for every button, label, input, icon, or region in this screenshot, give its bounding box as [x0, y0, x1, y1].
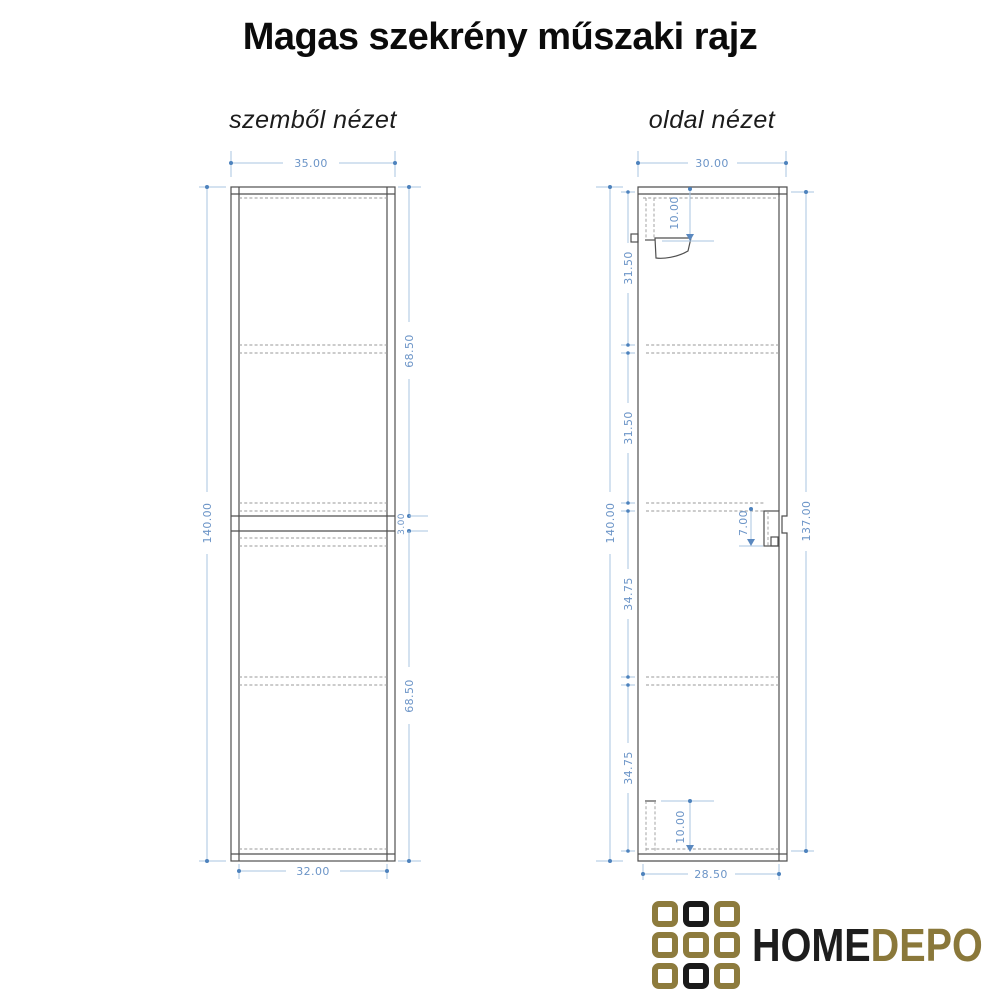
dim-side-bottom-detail: 10.00	[674, 810, 687, 844]
logo-square	[714, 932, 740, 958]
dim-front-bottom-width: 32.00	[296, 865, 330, 878]
front-dim-height: 140.00	[199, 185, 226, 863]
homedepo-logo: HOMEDEPO	[652, 901, 1000, 989]
side-dim-height: 140.00	[596, 185, 623, 863]
logo-square	[683, 963, 709, 989]
dim-front-gap: 3.00	[397, 513, 407, 535]
front-dim-bottom-width: 32.00	[237, 864, 389, 879]
dim-side-interior-height: 137.00	[800, 501, 813, 542]
dim-side-mid-detail: 7.00	[737, 510, 750, 536]
logo-square	[683, 932, 709, 958]
dim-front-upper-section: 68.50	[403, 334, 416, 368]
front-dim-lower-section: 68.50	[398, 531, 421, 863]
side-dim-bottom-width: 28.50	[641, 864, 781, 881]
dim-side-bottom-width: 28.50	[694, 868, 728, 881]
side-mid-bracket	[764, 511, 779, 546]
side-view-drawing: 30.00 140.00	[596, 151, 814, 881]
dim-side-section-3: 34.75	[622, 577, 635, 611]
dim-side-top-width: 30.00	[695, 157, 729, 170]
side-dim-sections: 31.50 31.50 34.75 34.75	[621, 190, 635, 853]
front-dim-gap: 3.00	[397, 513, 428, 535]
dim-side-top-detail: 10.00	[668, 196, 681, 230]
logo-square	[714, 901, 740, 927]
dim-front-lower-section: 68.50	[403, 679, 416, 713]
logo-square	[652, 932, 678, 958]
dim-front-height: 140.00	[201, 503, 214, 544]
logo-square	[714, 963, 740, 989]
logo-text-depo: DEPO	[871, 919, 983, 971]
logo-grid-icon	[652, 901, 740, 989]
side-dim-interior-height: 137.00	[791, 190, 814, 853]
side-dim-top-width: 30.00	[636, 151, 788, 177]
technical-drawing-page: Magas szekrény műszaki rajz szemből néze…	[0, 0, 1000, 1000]
dim-front-top-width: 35.00	[294, 157, 328, 170]
dim-side-section-4: 34.75	[622, 751, 635, 785]
cabinet-technical-drawing: 35.00 140.00 68.50	[0, 0, 1000, 1000]
front-dim-upper-section: 68.50	[398, 185, 421, 518]
front-cabinet-outline	[231, 187, 395, 861]
logo-wordmark: HOMEDEPO	[752, 918, 983, 972]
dim-side-height: 140.00	[604, 503, 617, 544]
dim-side-section-2: 31.50	[622, 411, 635, 445]
logo-square	[652, 963, 678, 989]
dim-side-section-1: 31.50	[622, 251, 635, 285]
front-view-drawing: 35.00 140.00 68.50	[199, 151, 428, 879]
logo-square	[683, 901, 709, 927]
front-dim-top-width: 35.00	[229, 151, 397, 177]
logo-square	[652, 901, 678, 927]
logo-text-home: HOME	[752, 919, 871, 971]
